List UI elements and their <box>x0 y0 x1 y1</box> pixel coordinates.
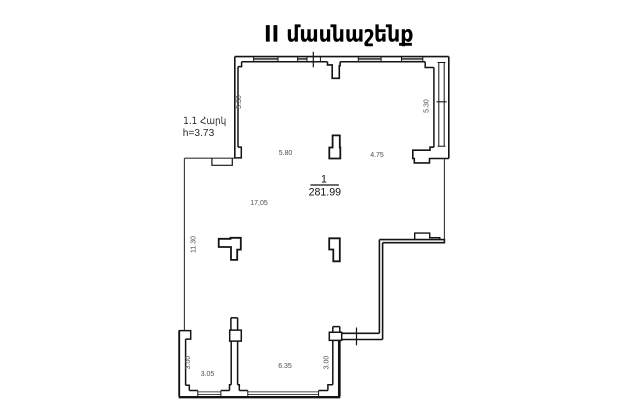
svg-text:4.75: 4.75 <box>370 152 384 159</box>
svg-text:5.30: 5.30 <box>236 95 243 109</box>
svg-text:281.99: 281.99 <box>309 186 342 198</box>
svg-text:3.00: 3.00 <box>185 356 192 370</box>
svg-text:5.30: 5.30 <box>424 99 431 113</box>
svg-text:h=3.73: h=3.73 <box>183 128 215 139</box>
svg-text:11.30: 11.30 <box>190 236 197 253</box>
svg-text:5.80: 5.80 <box>279 150 293 157</box>
svg-text:3.05: 3.05 <box>201 371 215 378</box>
svg-text:3.00: 3.00 <box>323 356 330 370</box>
svg-text:6.35: 6.35 <box>278 363 292 370</box>
svg-text:17,05: 17,05 <box>250 200 268 207</box>
svg-text:1: 1 <box>321 174 327 186</box>
